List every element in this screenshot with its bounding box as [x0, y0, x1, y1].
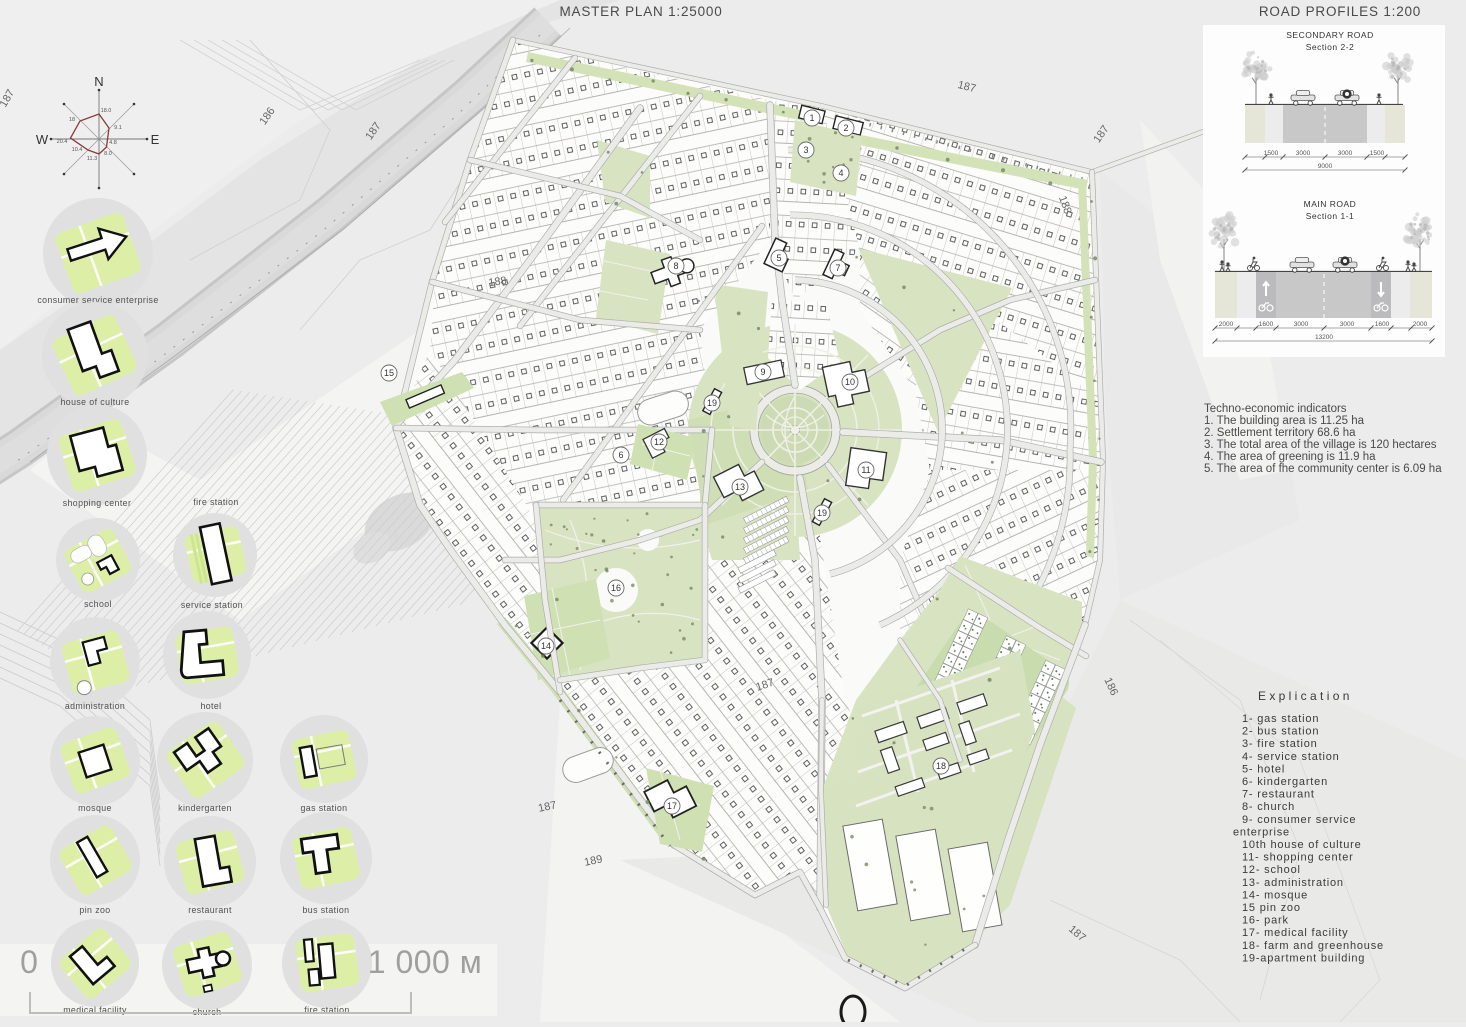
svg-text:0: 0	[20, 944, 38, 980]
svg-text:E x p l i c a t i o n: E x p l i c a t i o n	[1258, 689, 1349, 703]
svg-text:4: 4	[838, 168, 843, 178]
svg-text:kindergarten: kindergarten	[178, 803, 232, 813]
svg-text:5. The area of fhe community c: 5. The area of fhe community center is 6…	[1204, 463, 1442, 475]
svg-text:20.4: 20.4	[57, 139, 68, 145]
svg-text:shopping center: shopping center	[63, 498, 132, 508]
svg-text:11- shopping center: 11- shopping center	[1242, 852, 1354, 864]
svg-text:hotel: hotel	[200, 701, 221, 711]
svg-text:pin zoo: pin zoo	[79, 905, 110, 915]
svg-text:mosque: mosque	[78, 803, 112, 813]
svg-text:1600: 1600	[1259, 321, 1274, 328]
svg-text:15 pin zoo: 15 pin zoo	[1242, 902, 1301, 914]
svg-text:3- fire station: 3- fire station	[1242, 738, 1318, 750]
svg-text:2000: 2000	[1413, 321, 1428, 328]
svg-text:Section 1-1: Section 1-1	[1306, 211, 1355, 221]
svg-text:16- park: 16- park	[1242, 915, 1289, 927]
svg-text:3000: 3000	[1338, 150, 1353, 157]
svg-text:13: 13	[735, 482, 745, 492]
svg-text:Techno-economic indicators: Techno-economic indicators	[1204, 403, 1347, 415]
svg-text:9- consumer service: 9- consumer service	[1242, 814, 1356, 826]
svg-text:7: 7	[835, 263, 840, 273]
svg-text:6- kindergarten: 6- kindergarten	[1242, 776, 1328, 788]
svg-text:2- bus station: 2- bus station	[1242, 726, 1319, 738]
svg-text:N: N	[94, 74, 103, 89]
svg-text:10th house of culture: 10th house of culture	[1242, 839, 1362, 851]
svg-text:8- church: 8- church	[1242, 801, 1295, 813]
svg-text:13- administration: 13- administration	[1242, 877, 1344, 889]
svg-text:5- hotel: 5- hotel	[1242, 763, 1285, 775]
svg-text:10: 10	[845, 377, 855, 387]
svg-text:18: 18	[69, 117, 75, 123]
svg-text:MASTER PLAN 1:25000: MASTER PLAN 1:25000	[559, 4, 722, 19]
svg-text:1500: 1500	[1264, 150, 1279, 157]
svg-text:SECONDARY ROAD: SECONDARY ROAD	[1286, 30, 1373, 40]
svg-text:1500: 1500	[1370, 150, 1385, 157]
svg-text:gas station: gas station	[301, 803, 348, 813]
svg-text:19: 19	[707, 398, 717, 408]
svg-text:18.0: 18.0	[101, 108, 112, 114]
svg-text:fire station: fire station	[193, 497, 238, 507]
svg-text:4.8: 4.8	[109, 140, 117, 146]
svg-text:15: 15	[384, 368, 394, 378]
svg-text:ROAD PROFILES 1:200: ROAD PROFILES 1:200	[1259, 4, 1421, 19]
svg-text:12- school: 12- school	[1242, 864, 1301, 876]
svg-text:9000: 9000	[1318, 163, 1333, 170]
svg-text:2. Settlement territory 68.6 h: 2. Settlement territory 68.6 ha	[1204, 427, 1356, 439]
svg-text:service station: service station	[181, 600, 243, 610]
svg-text:4. The area of greening is 11.: 4. The area of greening is 11.9 ha	[1204, 451, 1376, 463]
svg-text:17- medical facility: 17- medical facility	[1242, 927, 1348, 939]
svg-text:school: school	[84, 599, 112, 609]
svg-text:4- service station: 4- service station	[1242, 751, 1340, 763]
svg-text:12: 12	[654, 437, 664, 447]
svg-text:2000: 2000	[1219, 321, 1234, 328]
svg-text:MAIN ROAD: MAIN ROAD	[1304, 199, 1357, 209]
svg-text:1: 1	[809, 113, 814, 123]
svg-text:18: 18	[936, 761, 946, 771]
svg-text:9: 9	[760, 367, 765, 377]
svg-text:E: E	[151, 132, 160, 147]
svg-text:3000: 3000	[1340, 321, 1355, 328]
svg-text:3. The total area of the villa: 3. The total area of the village is 120 …	[1204, 439, 1437, 451]
svg-text:11.3: 11.3	[87, 156, 97, 162]
svg-text:3000: 3000	[1296, 150, 1311, 157]
svg-text:2: 2	[843, 123, 848, 133]
svg-text:6: 6	[618, 450, 623, 460]
svg-text:10.4: 10.4	[72, 147, 83, 153]
svg-text:5: 5	[776, 253, 781, 263]
svg-text:17: 17	[667, 801, 677, 811]
svg-text:3000: 3000	[1294, 321, 1309, 328]
svg-text:188: 188	[488, 275, 508, 289]
svg-text:18- farm and greenhouse: 18- farm and greenhouse	[1242, 940, 1384, 952]
svg-text:restaurant: restaurant	[188, 905, 232, 915]
svg-text:3: 3	[803, 145, 808, 155]
svg-text:14- mosque: 14- mosque	[1242, 889, 1308, 901]
svg-text:11: 11	[861, 465, 870, 475]
svg-text:W: W	[36, 132, 49, 147]
svg-text:enterprise: enterprise	[1233, 826, 1290, 838]
svg-text:14: 14	[541, 641, 551, 651]
svg-text:13200: 13200	[1315, 334, 1333, 341]
svg-text:7- restaurant: 7- restaurant	[1242, 789, 1315, 801]
svg-text:16: 16	[611, 583, 621, 593]
svg-text:19-apartment building: 19-apartment building	[1242, 952, 1365, 964]
svg-text:1- gas station: 1- gas station	[1242, 713, 1319, 725]
svg-text:8: 8	[673, 261, 678, 271]
svg-text:bus station: bus station	[303, 905, 350, 915]
svg-text:19: 19	[817, 508, 827, 518]
svg-text:8.0: 8.0	[104, 151, 112, 157]
svg-text:Section 2-2: Section 2-2	[1306, 42, 1355, 52]
svg-text:1. The building area is 11.25: 1. The building area is 11.25 ha	[1204, 415, 1365, 427]
svg-text:1600: 1600	[1375, 321, 1390, 328]
svg-text:1 000 м: 1 000 м	[368, 944, 482, 980]
svg-text:9.1: 9.1	[114, 125, 122, 131]
svg-text:administration: administration	[65, 701, 125, 711]
